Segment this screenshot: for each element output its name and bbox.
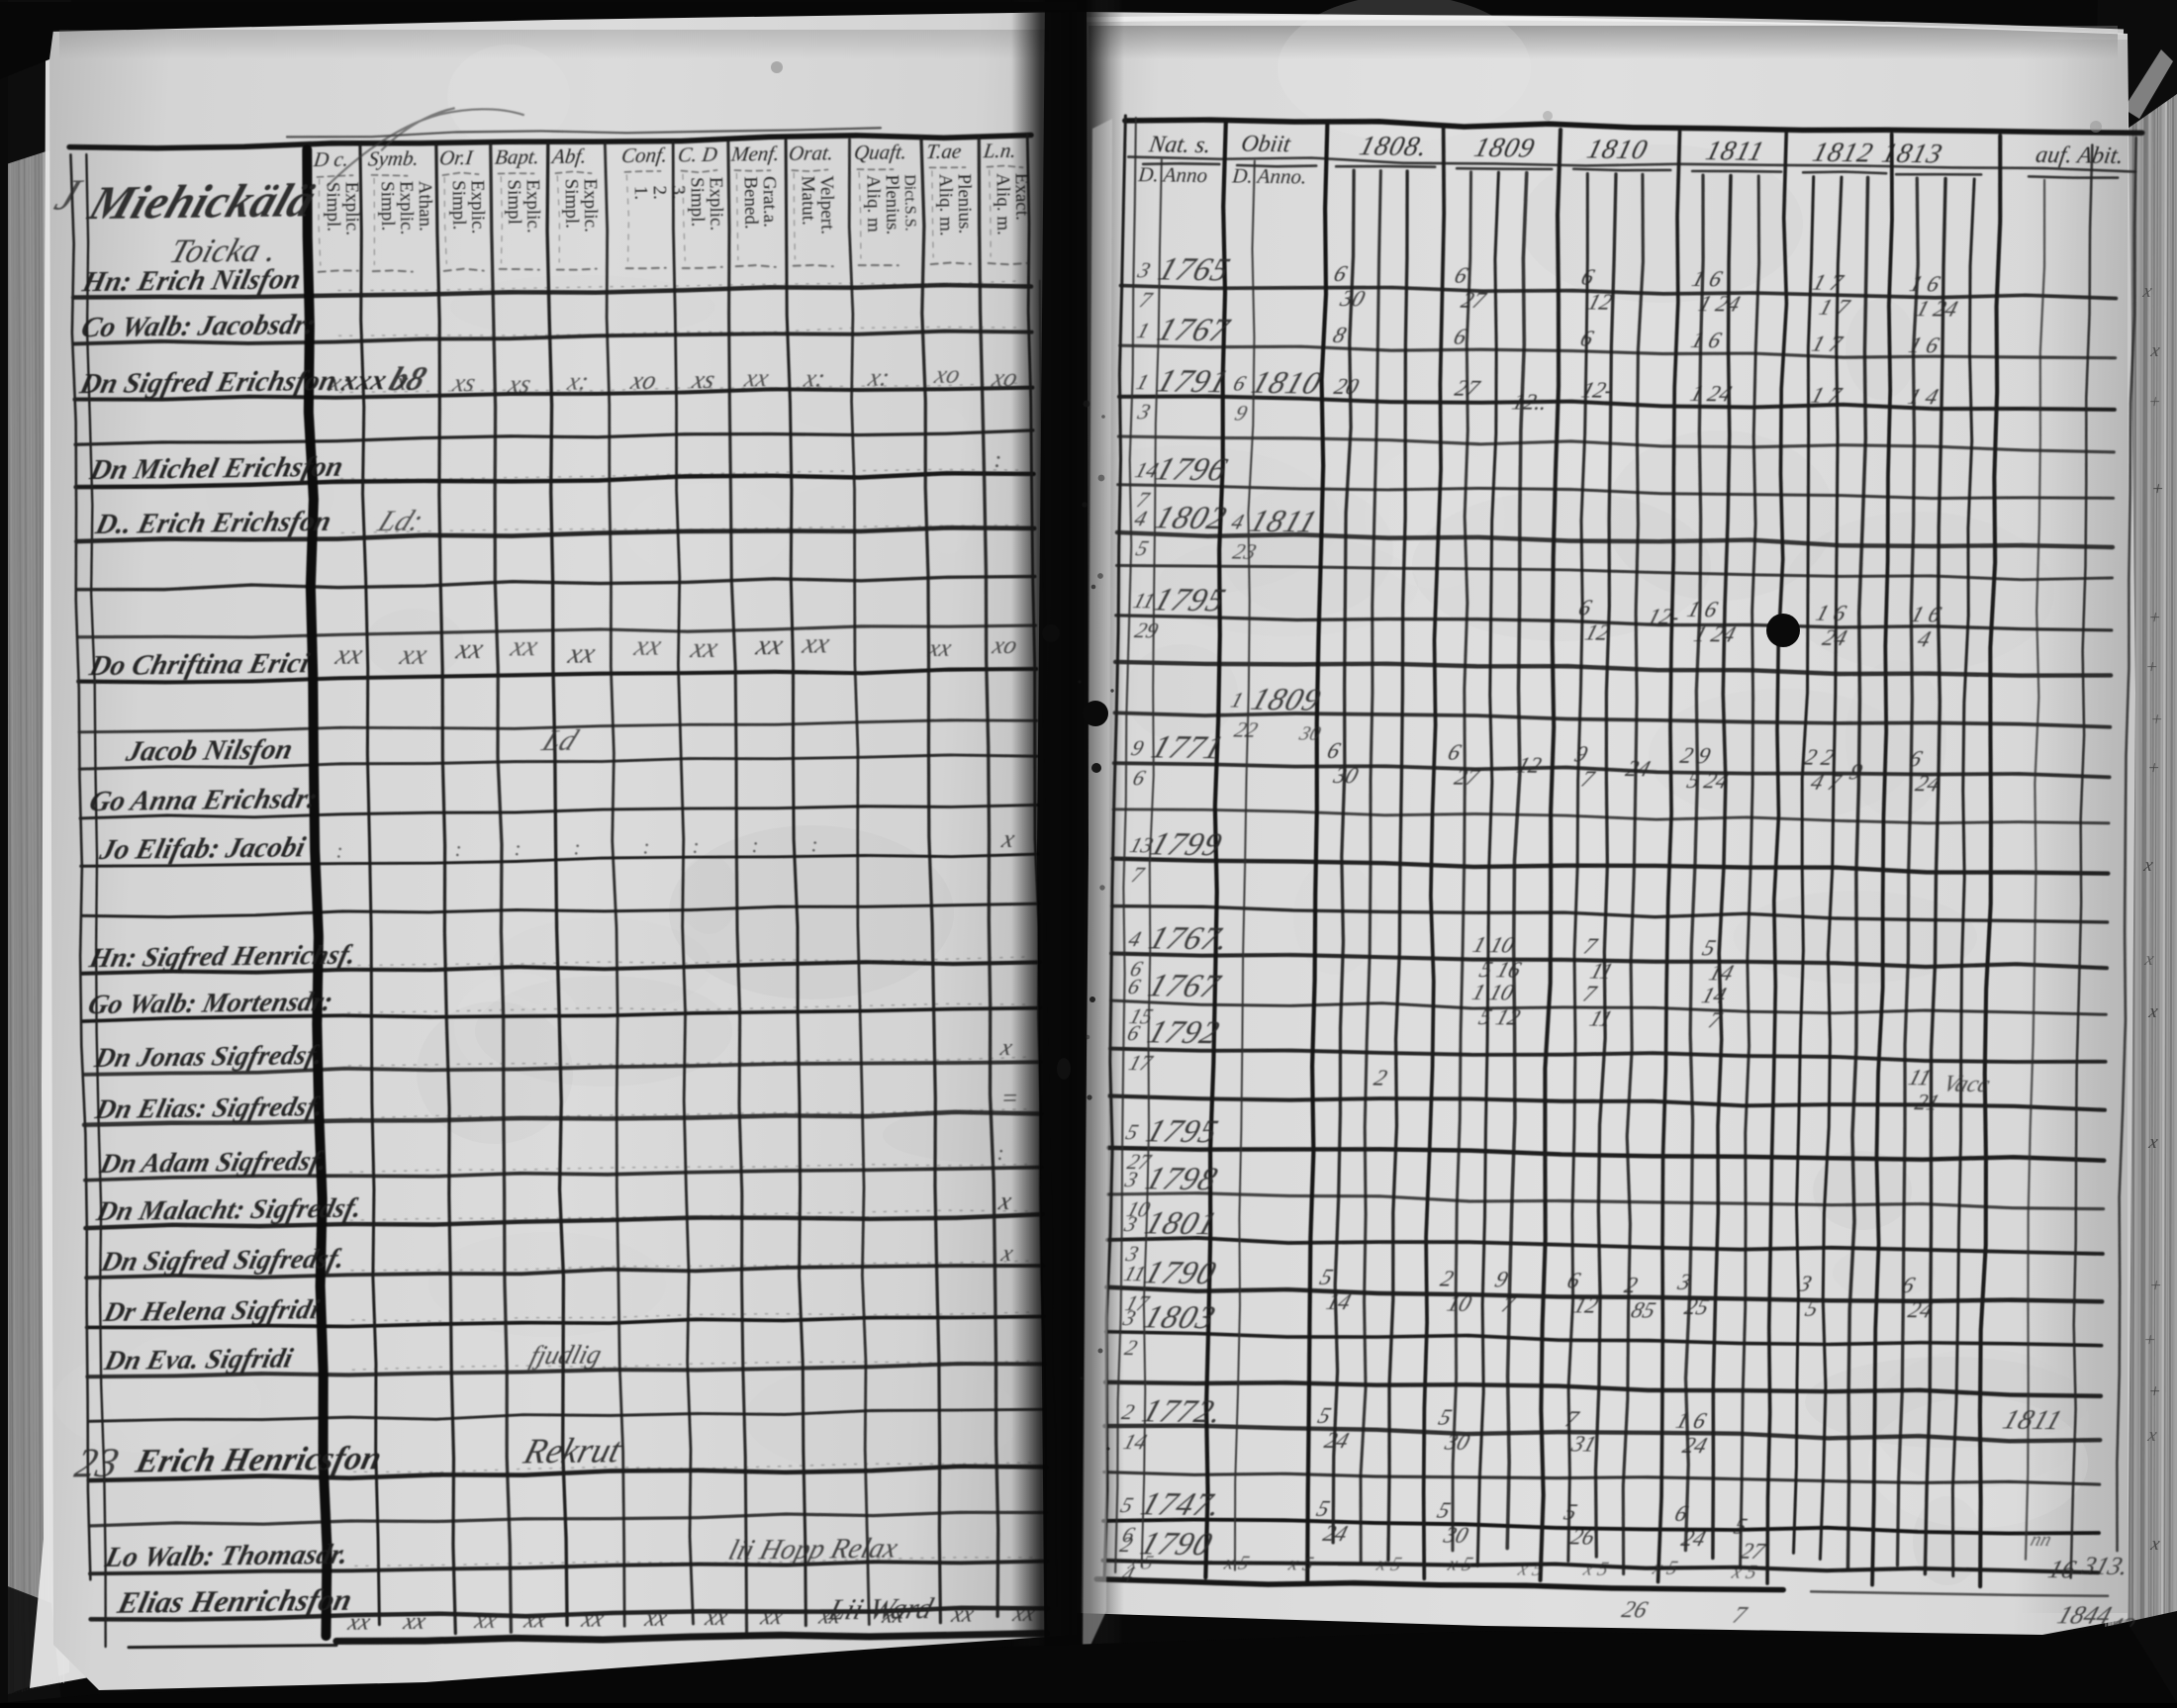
svg-text:fjudlig: fjudlig (527, 1339, 606, 1370)
svg-text:Dr Helena Sigfridi: Dr Helena Sigfridi (100, 1294, 322, 1327)
svg-text:1844: 1844 (2054, 1600, 2116, 1630)
svg-text:Simpl.: Simpl. (448, 180, 470, 230)
svg-text:Aliq. m.: Aliq. m. (993, 173, 1014, 236)
svg-text::: : (642, 834, 650, 859)
svg-text::: : (573, 835, 581, 860)
svg-text:Nat. s.: Nat. s. (1146, 132, 1212, 158)
svg-text:auf. Abit.: auf. Abit. (2034, 142, 2125, 169)
svg-text:Jacob Nilsfon: Jacob Nilsfon (123, 734, 296, 768)
svg-text:1767: 1767 (1153, 312, 1235, 348)
svg-text:Abf.: Abf. (549, 144, 588, 168)
svg-text:5 24: 5 24 (1684, 768, 1732, 794)
svg-text:Bened.: Bened. (740, 176, 762, 230)
svg-text:Rekrut: Rekrut (519, 1430, 626, 1471)
svg-text:1765: 1765 (1154, 251, 1235, 288)
svg-text::: : (335, 838, 343, 863)
svg-text:Simpl.: Simpl. (561, 179, 583, 229)
svg-text:Hn: Sigfred Henrichsf.: Hn: Sigfred Henrichsf. (85, 940, 358, 974)
svg-text:D.. Erich Erichsfon: D.. Erich Erichsfon (92, 506, 334, 540)
svg-text:1811: 1811 (1999, 1404, 2066, 1436)
svg-text:Symb.: Symb. (367, 146, 421, 171)
svg-text:1 24: 1 24 (1691, 621, 1739, 647)
svg-text:Elias Henrichsfon: Elias Henrichsfon (114, 1582, 355, 1620)
svg-text:Go Walb: Mortensdr:: Go Walb: Mortensdr: (85, 987, 335, 1020)
svg-text::: : (692, 833, 700, 858)
svg-text:1811: 1811 (1703, 137, 1768, 167)
svg-text:Co Walb: Jacobsdr:: Co Walb: Jacobsdr: (78, 309, 319, 343)
svg-text:Dn Sigfred Sigfredsf.: Dn Sigfred Sigfredsf. (97, 1244, 347, 1278)
svg-text:1 24: 1 24 (1913, 297, 1960, 323)
svg-text:1811: 1811 (1245, 505, 1322, 540)
svg-text:3.: 3. (668, 185, 689, 200)
svg-text:1810: 1810 (1584, 135, 1652, 165)
svg-text:1802: 1802 (1150, 500, 1231, 536)
svg-text:1 24: 1 24 (1687, 381, 1735, 407)
svg-text:1813: 1813 (1878, 139, 1945, 169)
svg-text:1809: 1809 (1471, 133, 1539, 163)
svg-text:1798: 1798 (1141, 1161, 1222, 1197)
svg-text:Vacc: Vacc (1940, 1071, 1993, 1097)
svg-text:Dn Michel Erichsfon: Dn Michel Erichsfon (86, 451, 346, 486)
svg-text:Conf.: Conf. (620, 143, 669, 168)
svg-text:Aliq. m: Aliq. m (863, 175, 885, 234)
svg-text:Dn Malacht: Sigfredsf.: Dn Malacht: Sigfredsf. (93, 1193, 365, 1227)
svg-text:Bapt.: Bapt. (494, 144, 541, 169)
svg-text:1767.: 1767. (1144, 920, 1234, 957)
svg-text::: : (751, 832, 759, 857)
svg-text:1792: 1792 (1143, 1014, 1224, 1051)
svg-text:Miehickälä: Miehickälä (81, 173, 323, 229)
svg-text:1.: 1. (630, 186, 651, 201)
svg-text:Or.I: Or.I (438, 145, 475, 169)
svg-text::: : (810, 832, 818, 857)
svg-text:Dn Adam Sigfredsf.: Dn Adam Sigfredsf. (96, 1146, 331, 1180)
svg-text:Menf.: Menf. (729, 142, 781, 166)
svg-text:1 10: 1 10 (1469, 932, 1517, 958)
svg-text:Go Anna Erichsdr:: Go Anna Erichsdr: (86, 783, 321, 817)
svg-text:Lo Walb: Thomasdr.: Lo Walb: Thomasdr. (101, 1539, 351, 1573)
svg-text:1 24: 1 24 (1695, 291, 1743, 317)
svg-text:Aliq. m.: Aliq. m. (935, 174, 957, 237)
svg-text:Hn: Erich Nilsfon: Hn: Erich Nilsfon (78, 264, 303, 298)
svg-text:1801: 1801 (1140, 1205, 1221, 1242)
svg-text:Orat.: Orat. (788, 141, 835, 165)
svg-text:1771: 1771 (1147, 729, 1228, 766)
svg-text:C. D: C. D (677, 142, 719, 166)
svg-text:1 10: 1 10 (1469, 980, 1517, 1005)
svg-text:1810: 1810 (1247, 366, 1326, 402)
svg-text:1790: 1790 (1140, 1255, 1221, 1291)
svg-text:Dn Eva. Sigfridi: Dn Eva. Sigfridi (101, 1344, 296, 1376)
svg-text:2.: 2. (649, 185, 670, 200)
svg-text:D c.: D c. (312, 147, 350, 171)
svg-text:Simpl: Simpl (504, 179, 525, 225)
svg-text::: : (996, 1140, 1004, 1165)
svg-text:D. Anno: D. Anno (1137, 162, 1209, 187)
svg-text:313.: 313. (2078, 1551, 2132, 1580)
svg-text:1799: 1799 (1146, 826, 1227, 863)
svg-text:1747.: 1747. (1137, 1486, 1227, 1523)
svg-text::: : (994, 447, 1001, 473)
svg-text:Do Chriftina Erici: Do Chriftina Erici (85, 648, 313, 683)
svg-text:5 12: 5 12 (1475, 1004, 1523, 1030)
svg-text:1772.: 1772. (1138, 1393, 1228, 1430)
svg-text:Quaft.: Quaft. (853, 140, 908, 164)
svg-text:Obiit: Obiit (1239, 132, 1293, 158)
svg-text:1795: 1795 (1149, 582, 1230, 618)
svg-text:Simpl.: Simpl. (377, 181, 399, 231)
svg-text:Simpl.: Simpl. (687, 177, 709, 227)
svg-text:Dn Elias: Sigfredsf.: Dn Elias: Sigfredsf. (91, 1091, 327, 1125)
svg-text:Simpl.: Simpl. (323, 182, 344, 232)
svg-text:1796: 1796 (1151, 451, 1232, 488)
svg-text:1812: 1812 (1809, 138, 1876, 168)
svg-text:1809: 1809 (1247, 683, 1326, 718)
svg-text:Erich Henricsfon: Erich Henricsfon (132, 1440, 385, 1480)
svg-text:1767: 1767 (1144, 968, 1226, 1004)
svg-text:Jo Elifab: Jacobi: Jo Elifab: Jacobi (96, 832, 309, 866)
svg-text:Lii Ward: Lii Ward (824, 1592, 937, 1627)
svg-text:1795: 1795 (1142, 1113, 1223, 1150)
svg-text::: : (454, 836, 462, 861)
svg-text:lii Hopp Relax: lii Hopp Relax (725, 1533, 901, 1566)
svg-text:Dict.S.S.: Dict.S.S. (901, 174, 919, 232)
svg-text::: : (514, 835, 521, 860)
svg-text:Matut.: Matut. (798, 175, 819, 225)
svg-text:1808.: 1808. (1357, 132, 1432, 162)
svg-text:Dn Jonas Sigfredsf.: Dn Jonas Sigfredsf. (91, 1040, 327, 1074)
svg-text:1791: 1791 (1152, 363, 1233, 400)
svg-text:1803: 1803 (1139, 1299, 1220, 1336)
svg-text:T.ae: T.ae (925, 140, 963, 163)
